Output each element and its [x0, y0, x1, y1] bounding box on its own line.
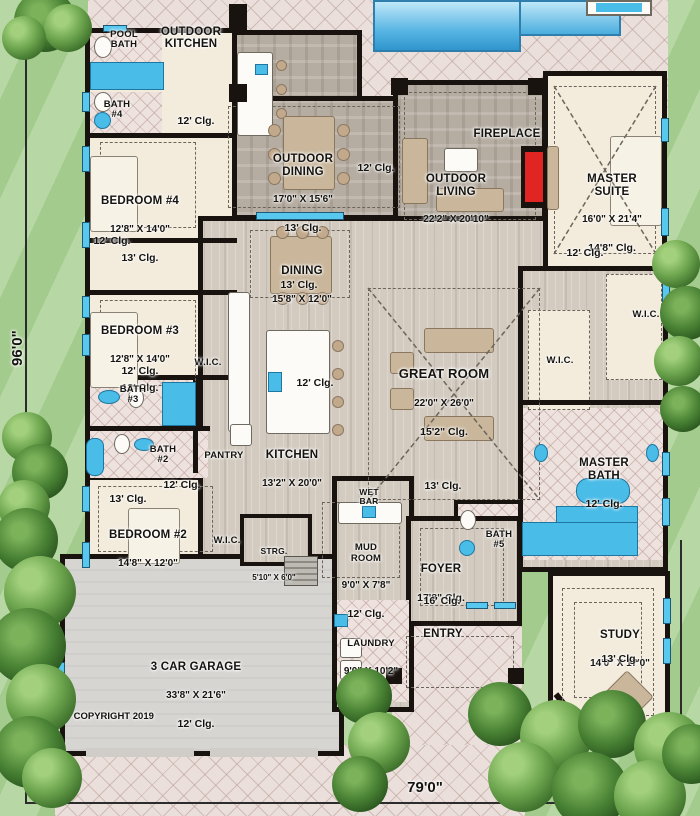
- bath3-name: BATH #3: [108, 385, 158, 406]
- garage-door: [86, 748, 194, 757]
- bedroom4-name: BEDROOM #4: [85, 195, 195, 207]
- wet-bar-sink: [362, 506, 376, 518]
- outdoor-kitchen-sink: [255, 64, 268, 75]
- bath5-toilet: [460, 510, 476, 530]
- note-patio-clg: 12' Clg.: [346, 163, 406, 174]
- label-kitchen: KITCHEN 13'2" X 20'0": [237, 432, 347, 507]
- wall-hall-bed3: [85, 290, 237, 295]
- label-mud-room: MUD ROOM 9'0" X 7'8" 12' Clg.: [331, 526, 401, 638]
- tree: [488, 742, 558, 812]
- study-name: STUDY: [565, 629, 675, 641]
- wet-bar-name: WET BAR: [344, 488, 394, 506]
- garage-door: [210, 748, 318, 757]
- pantry-name: PANTRY: [184, 451, 264, 461]
- window: [661, 118, 669, 142]
- master-suite-name: MASTER SUITE: [557, 173, 667, 198]
- note-study-clg: 13' Clg.: [590, 654, 650, 665]
- kitchen-dims: 13'2" X 20'0": [237, 479, 347, 490]
- master-bath-sink: [534, 444, 548, 462]
- note-great-clg: 13' Clg.: [413, 481, 473, 492]
- dining-dims: 15'8" X 12'0": [247, 295, 357, 306]
- bath2-tub: [86, 438, 104, 476]
- tree: [44, 4, 92, 52]
- great-room-clg: 15'2" Clg.: [374, 427, 514, 438]
- bedroom2-dims: 14'8" X 12'0": [88, 559, 208, 570]
- master-suite-dims: 16'0" X 21'4": [557, 215, 667, 226]
- floor-plan: POOL BATH OUTDOOR KITCHEN 12' Clg. BATH …: [0, 0, 700, 816]
- copyright-text: © COPYRIGHT 2019: [64, 712, 214, 722]
- tray-entry-porch: [406, 636, 514, 688]
- master-bath-name: MASTER BATH: [564, 457, 644, 482]
- lot-width-dimension: 79'0": [390, 780, 460, 796]
- label-bath3: BATH #3: [108, 385, 158, 406]
- dining-name: DINING: [247, 265, 357, 277]
- note-outdoor-kitchen-clg: 12' Clg.: [166, 116, 226, 127]
- label-master-bath: MASTER BATH 12' Clg.: [564, 440, 644, 528]
- note-bedroom2-hall-clg: 12' Clg.: [152, 480, 212, 491]
- label-bath5: BATH #5: [474, 530, 524, 551]
- master-bath-wall: [518, 400, 668, 405]
- window: [494, 602, 516, 609]
- label-foyer: FOYER 17'8" Clg.: [401, 546, 481, 622]
- note-bedroom2-clg: 13' Clg.: [98, 494, 158, 505]
- laundry-name: LAUNDRY: [326, 639, 416, 649]
- great-room-name: GREAT ROOM: [374, 367, 514, 381]
- lot-depth-dimension: 96'0": [10, 318, 26, 378]
- outdoor-living-name: OUTDOOR LIVING: [401, 173, 511, 198]
- outdoor-dining-dims: 17'0" X 15'6": [248, 195, 358, 206]
- label-storage: STRG. 5'10" X 6'0": [234, 530, 314, 600]
- strg-dims: 5'10" X 6'0": [234, 574, 314, 583]
- label-outdoor-kitchen: OUTDOOR KITCHEN: [136, 26, 246, 51]
- note-dining-clg: 13' Clg.: [269, 280, 329, 291]
- stool: [332, 340, 344, 352]
- bath2-toilet: [114, 434, 130, 454]
- spa-water: [596, 3, 642, 12]
- note-hall4-clg: 12' Clg.: [82, 236, 142, 247]
- label-garage: 3 CAR GARAGE 33'8" X 21'6" 12' Clg.: [121, 644, 271, 748]
- bedroom2-name: BEDROOM #2: [88, 529, 208, 541]
- label-entry: ENTRY: [403, 628, 483, 640]
- kitchen-sink: [268, 372, 282, 392]
- label-bath2: BATH #2: [138, 445, 188, 466]
- label-wet-bar: WET BAR: [344, 488, 394, 506]
- bath2-name: BATH #2: [138, 445, 188, 466]
- pool: [373, 0, 521, 52]
- outdoor-living-dims: 22'2" X 20'10": [401, 215, 511, 226]
- fireplace-box: [525, 152, 543, 202]
- mud-room-clg: 12' Clg.: [331, 609, 401, 620]
- note-hall3-clg: 12' Clg.: [110, 366, 170, 377]
- wall-post: [528, 78, 545, 95]
- wall-bath4-bed4: [85, 133, 237, 138]
- label-pantry: PANTRY: [184, 451, 264, 461]
- tree: [652, 240, 700, 288]
- stool: [276, 60, 287, 71]
- foyer-name: FOYER: [401, 563, 481, 575]
- bath4-name: BATH #4: [92, 100, 142, 121]
- note-kitchen-clg: 12' Clg.: [285, 378, 345, 389]
- outdoor-dining-name: OUTDOOR DINING: [248, 153, 358, 178]
- wic-name: W.I.C.: [178, 358, 238, 368]
- garage-dims: 33'8" X 21'6": [121, 691, 271, 702]
- window: [662, 452, 670, 476]
- wic-name: W.I.C.: [530, 356, 590, 366]
- strg-name: STRG.: [234, 547, 314, 556]
- label-wic-hall: W.I.C.: [178, 358, 238, 368]
- mud-room-dims: 9'0" X 7'8": [331, 581, 401, 592]
- bush: [332, 756, 388, 812]
- porch-column: [508, 668, 524, 684]
- bath5-name: BATH #5: [474, 530, 524, 551]
- label-outdoor-living: OUTDOOR LIVING 22'2" X 20'10": [401, 156, 511, 243]
- tree: [22, 748, 82, 808]
- master-bath-sink: [646, 444, 659, 462]
- entry-name: ENTRY: [403, 628, 483, 640]
- wall-bath3-bath2: [85, 426, 210, 431]
- label-fireplace: FIREPLACE: [452, 128, 562, 140]
- pool-bath-shower: [90, 62, 164, 90]
- wall-post: [229, 84, 247, 102]
- window: [662, 498, 670, 526]
- bedroom3-name: BEDROOM #3: [85, 325, 195, 337]
- wall-post: [391, 78, 408, 95]
- fireplace-name: FIREPLACE: [452, 128, 562, 140]
- tree: [660, 386, 700, 432]
- tree: [2, 16, 46, 60]
- stool: [276, 84, 287, 95]
- stool: [332, 396, 344, 408]
- note-master-clg: 12' Clg.: [555, 248, 615, 259]
- great-room-dims: 22'0" X 26'0": [374, 399, 514, 410]
- label-wic-master-left: W.I.C.: [530, 356, 590, 366]
- outdoor-kitchen-name: OUTDOOR KITCHEN: [136, 26, 246, 51]
- label-bath4: BATH #4: [92, 100, 142, 121]
- label-bedroom2: BEDROOM #2 14'8" X 12'0": [88, 512, 208, 587]
- label-great-room: GREAT ROOM 22'0" X 26'0" 15'2" Clg.: [374, 350, 514, 455]
- label-outdoor-dining: OUTDOOR DINING 17'0" X 15'6" 13' Clg.: [248, 136, 358, 252]
- master-bath-clg: 12' Clg.: [564, 499, 644, 510]
- window: [82, 146, 90, 172]
- outdoor-dining-clg: 13' Clg.: [248, 223, 358, 234]
- window: [82, 92, 90, 112]
- tree: [654, 336, 700, 386]
- garage-name: 3 CAR GARAGE: [121, 661, 271, 673]
- mud-room-name: MUD ROOM: [331, 543, 401, 564]
- label-study: STUDY 14'0" X 17'0": [565, 612, 675, 687]
- window: [82, 486, 90, 512]
- note-foyer-entry-clg: 16' Clg.: [412, 596, 472, 607]
- label-bedroom4: BEDROOM #4 12'8" X 14'0" 13' Clg.: [85, 178, 195, 282]
- bedroom4-clg: 13' Clg.: [85, 253, 195, 264]
